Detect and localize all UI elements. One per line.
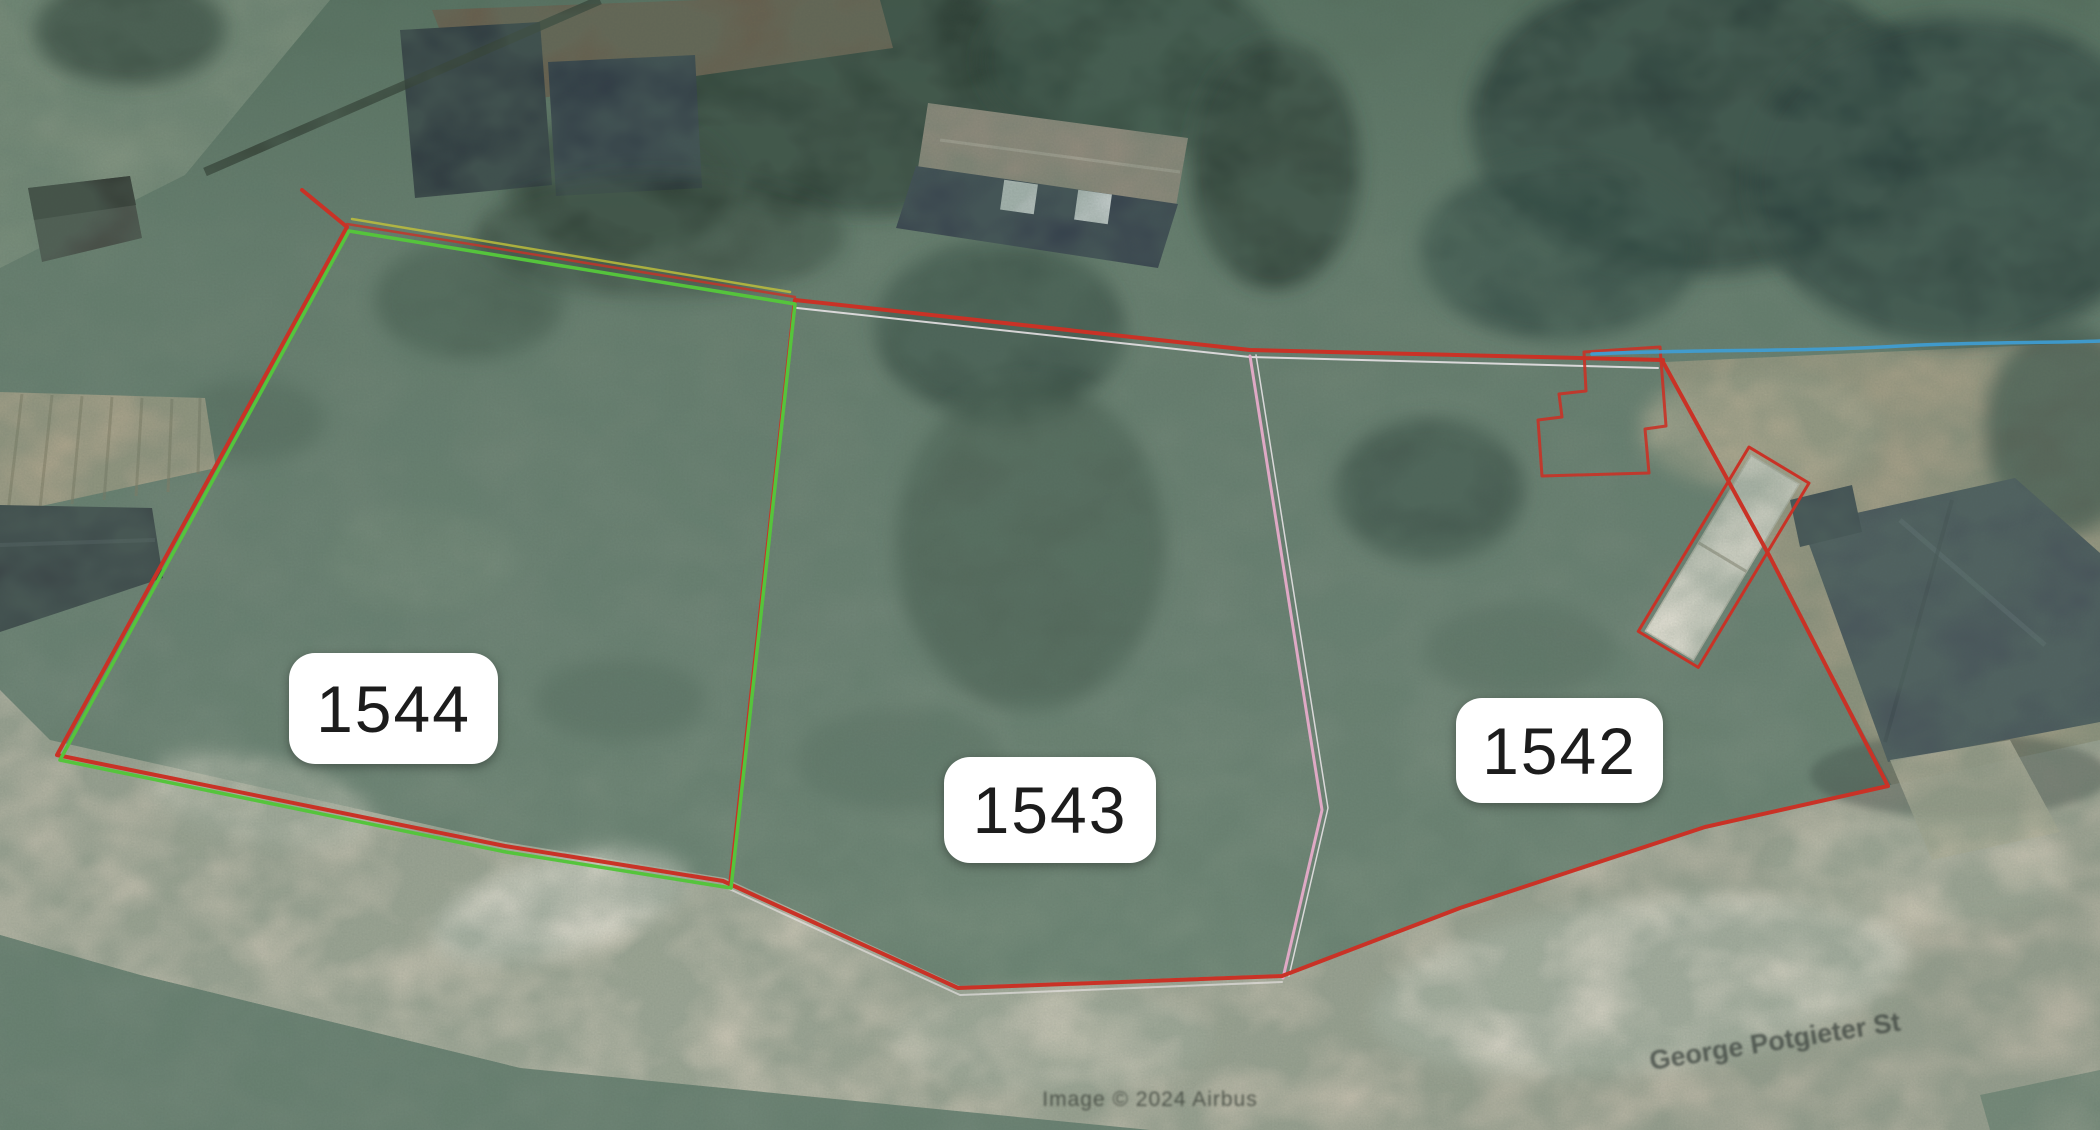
parcel-label-1544: 1544: [289, 653, 498, 764]
parcel-label-1543: 1543: [944, 757, 1156, 863]
parcel-number: 1544: [316, 671, 471, 747]
satellite-map[interactable]: 1544 1543 1542 Image © 2024 Airbus Georg…: [0, 0, 2100, 1130]
parcel-number: 1543: [973, 772, 1128, 848]
parcel-number: 1542: [1482, 713, 1637, 789]
parcel-region-1543[interactable]: [730, 302, 1322, 990]
map-canvas: [0, 0, 2100, 1130]
parcel-label-1542: 1542: [1456, 698, 1663, 803]
imagery-attribution: Image © 2024 Airbus: [1020, 1088, 1280, 1112]
